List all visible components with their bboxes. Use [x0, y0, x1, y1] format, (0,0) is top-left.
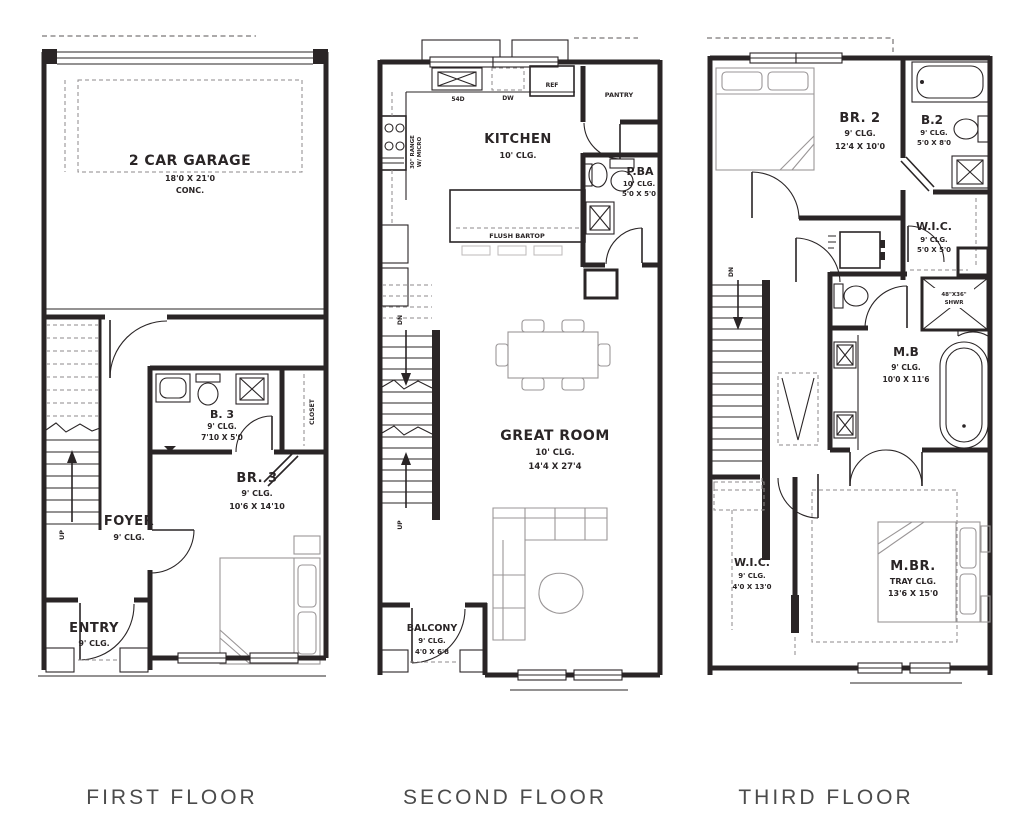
b2-vanity: [952, 156, 988, 188]
kitchen-sink: 54D: [432, 68, 482, 103]
sink-label: 54D: [451, 96, 464, 103]
island-bartop: FLUSH BARTOP: [450, 190, 585, 255]
range: 30" RANGE W/ MICRO: [380, 116, 423, 170]
shower-label: SHWR: [945, 300, 965, 306]
room-name: GREAT ROOM: [500, 428, 610, 444]
stairs-dn-label: DN: [397, 315, 404, 325]
room-clg: TRAY CLG.: [890, 577, 936, 586]
bathtub: [912, 62, 988, 102]
room-clg: 10' CLG.: [623, 180, 655, 188]
roofline-dashed: [707, 38, 893, 52]
room-name: P.BA: [626, 165, 654, 178]
mb-vanity: [834, 335, 858, 450]
room-note: CONC.: [176, 186, 204, 195]
room-clg: 9' CLG.: [738, 572, 765, 580]
pba-closet: [585, 270, 617, 298]
room-name: KITCHEN: [484, 132, 551, 147]
br3-door: [151, 530, 194, 573]
balcony-label: BALCONY 9' CLG. 4'0 X 6'8: [407, 623, 458, 656]
toilet: [196, 374, 220, 405]
pba-vanity: [586, 202, 614, 234]
refrigerator: REF: [530, 66, 574, 96]
room-clg: 9' CLG.: [920, 236, 947, 244]
third-floor-plan: BR. 2 9' CLG. 12'4 X 10'0 B.2 9' CLG. 5'…: [700, 30, 1000, 700]
wic-upper-cabinet: [958, 248, 988, 275]
room-name: W.I.C.: [916, 220, 952, 233]
stairs-dn-label: DN: [728, 267, 735, 277]
room-clg: 9' CLG.: [920, 129, 947, 137]
room-name: BR. 3: [236, 471, 277, 486]
room-clg: 9' CLG.: [113, 533, 144, 542]
br2-door: [752, 172, 799, 219]
first-floor-plan: 2 CAR GARAGE 18'0 X 21'0 CONC. UP CLOSET: [30, 30, 340, 690]
range-label: 30" RANGE: [410, 135, 416, 169]
staircase: UP: [46, 317, 100, 540]
shower: 48"X36" SHWR: [922, 278, 988, 336]
room-size: 5'0 X 8'0: [917, 139, 951, 147]
pocket-door: [791, 595, 799, 633]
room-name: ENTRY: [69, 621, 119, 636]
bed: [220, 536, 320, 664]
room-name: FOYER: [104, 514, 154, 529]
br2-label: BR. 2 9' CLG. 12'4 X 10'0: [835, 111, 885, 151]
second-floor-plan: 54D DW REF 30" RANGE W/ MICRO KITCHEN 10…: [370, 30, 670, 700]
room-size: 14'4 X 27'4: [528, 462, 581, 472]
down-arrow: [733, 317, 743, 330]
room-name: M.B: [893, 345, 919, 359]
stairs-up-label: UP: [58, 530, 66, 540]
room-clg: 9' CLG.: [241, 489, 272, 498]
room-size: 10'6 X 14'10: [229, 502, 285, 511]
room-size: 12'4 X 10'0: [835, 142, 885, 151]
pba-label: P.BA 10' CLG. 5'0 X 5'0: [622, 165, 656, 198]
b2-door-angled: [901, 157, 934, 191]
mb-label: M.B 9' CLG. 10'0 X 11'6: [883, 345, 930, 384]
washer-dryer: [828, 232, 885, 268]
wic-lower-label: W.I.C. 9' CLG. 4'0 X 13'0: [733, 556, 772, 591]
kitchen-label: KITCHEN 10' CLG.: [484, 132, 551, 160]
room-clg: 9' CLG.: [844, 129, 875, 138]
wic-upper-label: W.I.C. 9' CLG. 5'0 X 5'0: [916, 220, 952, 254]
b2-label: B.2 9' CLG. 5'0 X 8'0: [917, 113, 951, 147]
porch: [38, 648, 156, 676]
sofa: [493, 508, 607, 640]
bed: [716, 68, 814, 170]
staircase: DN: [712, 267, 770, 560]
br3-label: BR. 3 9' CLG. 10'6 X 14'10: [229, 471, 285, 511]
foyer-label: FOYER 9' CLG.: [104, 514, 154, 542]
room-clg: 10' CLG.: [535, 448, 574, 458]
dining-table: [496, 320, 610, 390]
room-size: 18'0 X 21'0: [165, 174, 215, 183]
base-cabinets: [380, 92, 408, 306]
closet-label: CLOSET: [309, 398, 316, 425]
mb-walls: [830, 272, 907, 450]
mbr-label: M.BR. TRAY CLG. 13'6 X 15'0: [888, 559, 938, 598]
second-floor-title: SECOND FLOOR: [355, 786, 655, 810]
room-name: B.2: [921, 113, 943, 127]
room-size: 4'0 X 6'8: [415, 648, 449, 656]
room-clg: 9' CLG.: [78, 639, 109, 648]
room-size: 4'0 X 13'0: [733, 583, 772, 591]
refrigerator-label: REF: [546, 82, 559, 89]
mbr-double-door: [850, 450, 922, 486]
room-size: 5'0 X 5'0: [917, 246, 951, 254]
room-name: B. 3: [210, 408, 234, 421]
window: [750, 53, 842, 63]
coffee-table: [539, 573, 583, 613]
toilet: [954, 116, 988, 142]
range-label2: W/ MICRO: [417, 136, 423, 167]
room-name: BALCONY: [407, 623, 458, 634]
room-clg: 9' CLG.: [207, 422, 237, 431]
bath3-label: B. 3 9' CLG. 7'10 X 5'0: [201, 408, 243, 442]
first-floor-title: FIRST FLOOR: [22, 786, 322, 810]
floorplan-sheet: 2 CAR GARAGE 18'0 X 21'0 CONC. UP CLOSET: [0, 0, 1024, 828]
room-size: 7'10 X 5'0: [201, 433, 243, 442]
great-room-label: GREAT ROOM 10' CLG. 14'4 X 27'4: [500, 428, 610, 472]
room-name: 2 CAR GARAGE: [129, 153, 251, 169]
room-name: W.I.C.: [734, 556, 770, 569]
garage-label: 2 CAR GARAGE 18'0 X 21'0 CONC.: [129, 153, 251, 195]
staircase: DN UP: [382, 285, 440, 530]
room-name: M.BR.: [890, 559, 935, 574]
third-floor-title: THIRD FLOOR: [676, 786, 976, 810]
freestanding-tub: [940, 342, 988, 448]
mb-door: [865, 286, 907, 328]
dishwasher: DW: [492, 68, 524, 102]
room-clg: 10' CLG.: [500, 151, 537, 160]
linen-cabinet: [236, 374, 268, 404]
entry-label: ENTRY 9' CLG.: [69, 621, 119, 648]
room-name: BR. 2: [839, 111, 880, 126]
wic-shelf-dashed: [910, 198, 976, 270]
sink: [156, 374, 190, 402]
room-size: 13'6 X 15'0: [888, 589, 938, 598]
bartop-label: FLUSH BARTOP: [489, 232, 545, 240]
shower-size-label: 48"X36": [941, 292, 966, 298]
dishwasher-label: DW: [502, 95, 514, 102]
pedestal-sink: [584, 163, 607, 187]
pba-door: [606, 228, 642, 264]
stairs-up-label: UP: [397, 520, 404, 530]
room-clg: 9' CLG.: [418, 637, 445, 645]
pantry-label: PANTRY: [605, 91, 634, 99]
toilet: [834, 284, 868, 308]
room-size: 5'0 X 5'0: [622, 190, 656, 198]
garage-door: [42, 49, 328, 64]
room-size: 10'0 X 11'6: [883, 375, 930, 384]
room-clg: 9' CLG.: [891, 363, 921, 372]
linen-closet-dashed: [778, 373, 818, 445]
